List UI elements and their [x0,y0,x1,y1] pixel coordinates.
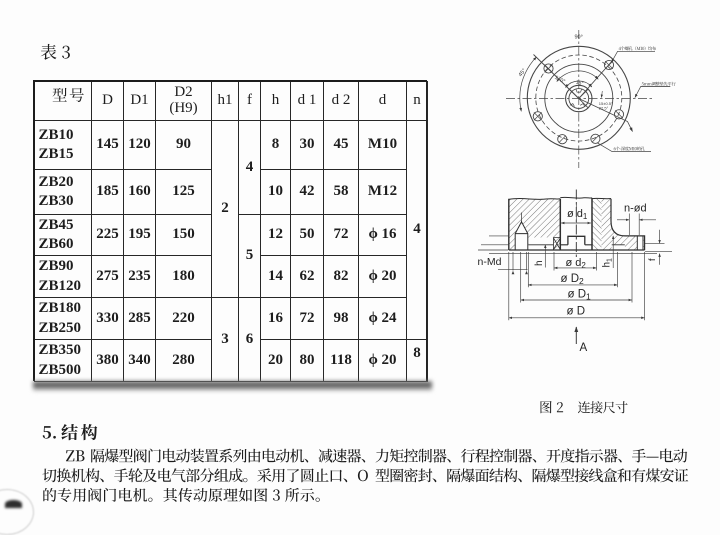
svg-text:ø D1: ø D1 [568,289,592,302]
svg-text:f: f [647,258,657,261]
svg-text:n-ød: n-ød [624,203,647,215]
svg-text:ø D: ø D [567,306,586,318]
svg-text:90°: 90° [575,35,583,41]
svg-text:45°: 45° [518,68,528,78]
svg-text:A: A [580,342,588,354]
svg-text:ø D2: ø D2 [561,273,585,286]
svg-text:ø d2: ø d2 [566,257,587,270]
svg-text:ø d1: ø d1 [567,208,588,221]
svg-text:h1: h1 [602,258,614,268]
svg-text:22.5°: 22.5° [599,105,609,110]
svg-text:n-Md: n-Md [478,256,502,268]
svg-text:h: h [534,260,545,266]
